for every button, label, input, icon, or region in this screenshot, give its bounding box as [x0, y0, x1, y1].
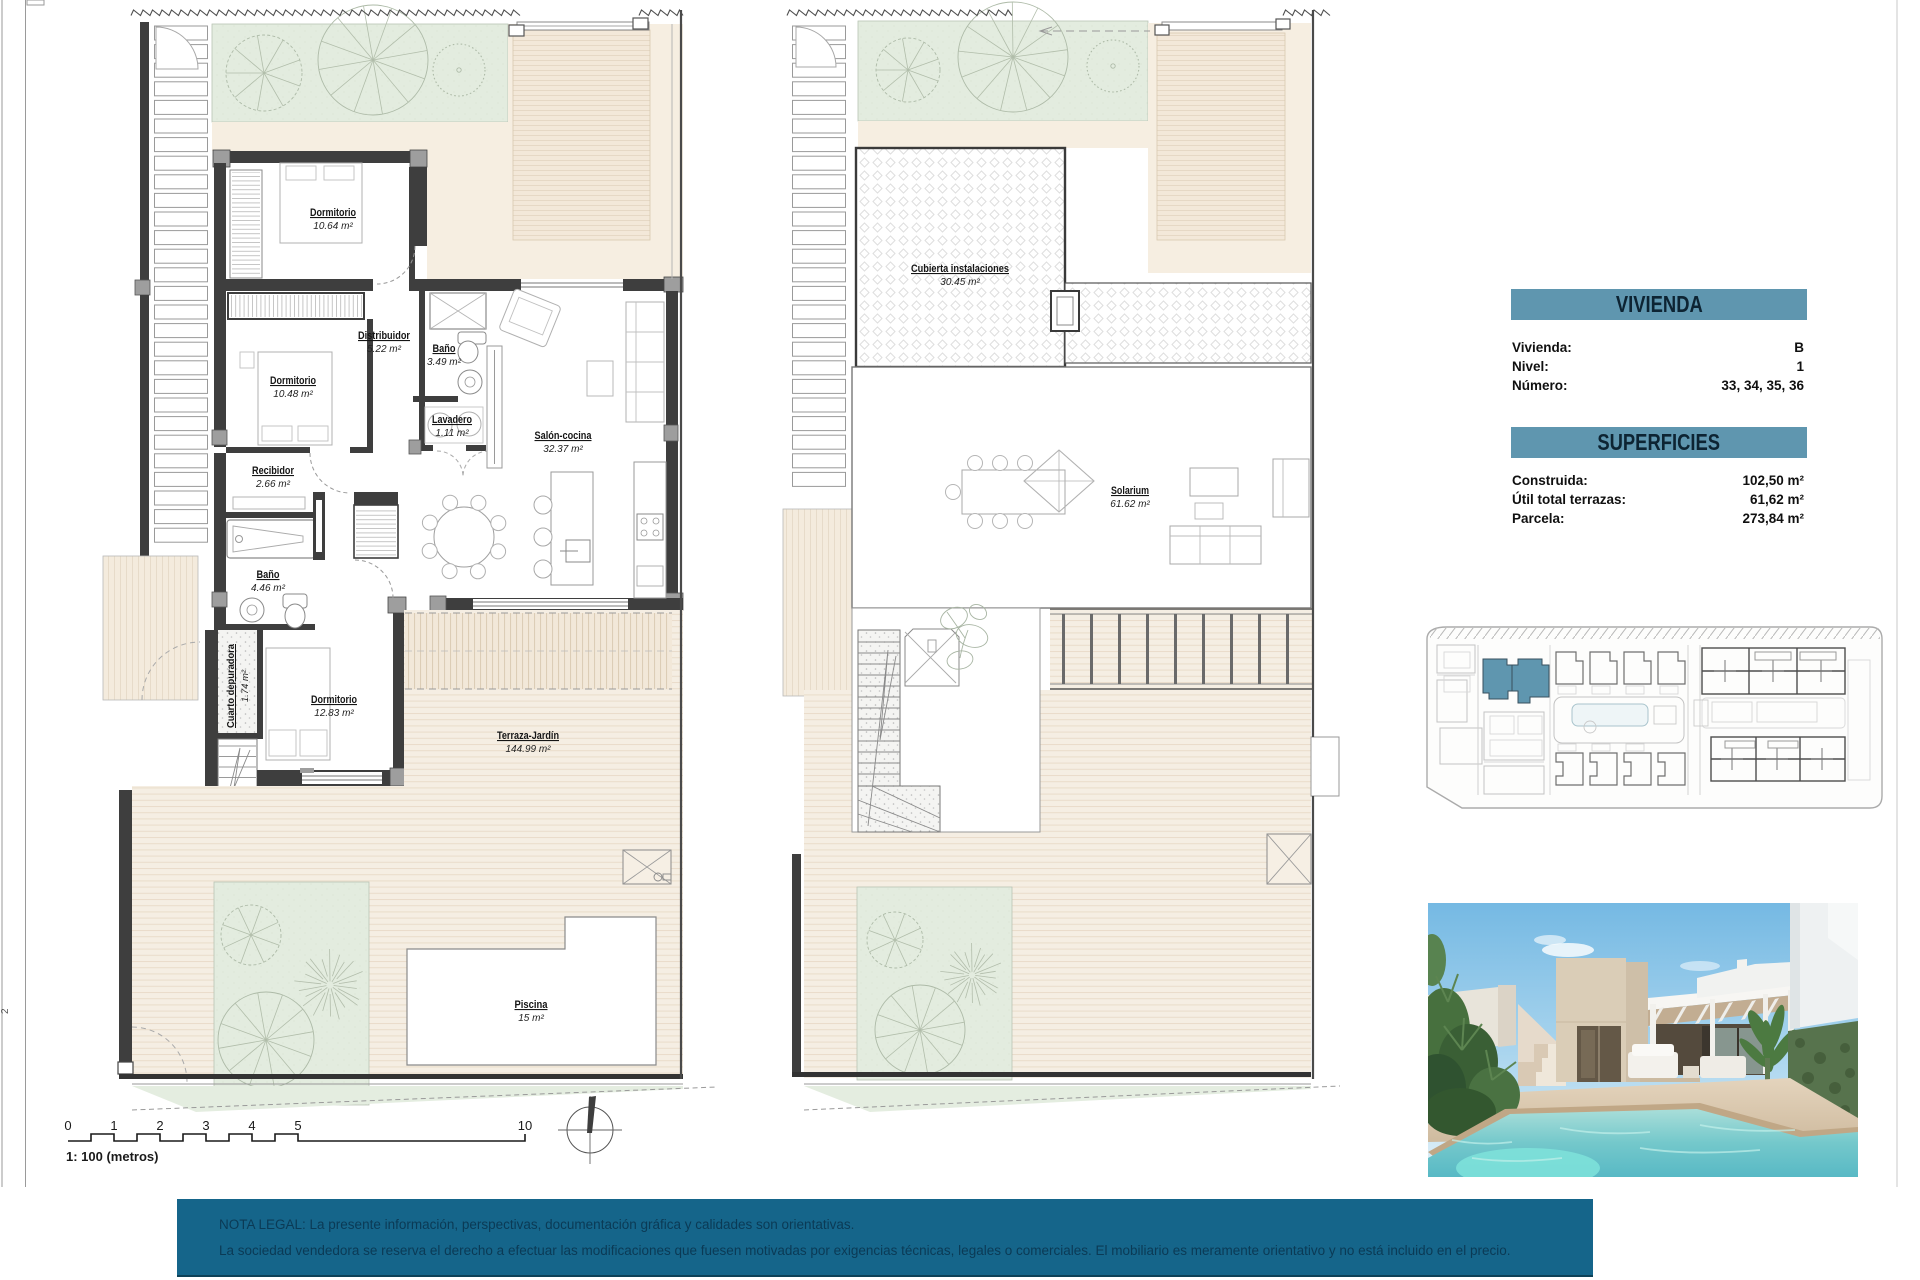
svg-text:Solarium: Solarium: [1111, 485, 1149, 497]
svg-text:Recibidor: Recibidor: [252, 465, 295, 477]
svg-text:1.74 m²: 1.74 m²: [240, 669, 251, 702]
svg-text:Cubierta instalaciones: Cubierta instalaciones: [911, 263, 1009, 275]
svg-text:1.11 m²: 1.11 m²: [435, 428, 469, 439]
svg-text:5: 5: [294, 1118, 301, 1133]
svg-text:12.83 m²: 12.83 m²: [314, 708, 354, 719]
svg-text:10: 10: [518, 1118, 532, 1133]
svg-text:Distribuidor: Distribuidor: [358, 330, 411, 342]
svg-text:4: 4: [248, 1118, 255, 1133]
svg-text:Cuarto depuradora: Cuarto depuradora: [226, 644, 237, 728]
svg-text:Baño: Baño: [433, 343, 456, 355]
svg-text:10.64 m²: 10.64 m²: [313, 221, 353, 232]
svg-text:5.22 m²: 5.22 m²: [367, 344, 402, 355]
svg-text:Dormitorio: Dormitorio: [270, 375, 316, 387]
svg-text:Piscina: Piscina: [515, 999, 549, 1011]
svg-text:32.37 m²: 32.37 m²: [543, 444, 583, 455]
svg-text:15 m²: 15 m²: [518, 1013, 544, 1024]
svg-text:0: 0: [64, 1118, 71, 1133]
svg-text:3: 3: [202, 1118, 209, 1133]
svg-text:Dormitorio: Dormitorio: [311, 694, 357, 706]
svg-text:Lavadero: Lavadero: [432, 414, 472, 426]
svg-text:30.45 m²: 30.45 m²: [940, 277, 980, 288]
svg-text:3.49 m²: 3.49 m²: [427, 357, 462, 368]
svg-text:4.46 m²: 4.46 m²: [251, 583, 286, 594]
svg-text:2: 2: [0, 1008, 11, 1014]
svg-text:1: 100 (metros): 1: 100 (metros): [66, 1149, 158, 1164]
svg-text:1: 1: [110, 1118, 117, 1133]
svg-text:2: 2: [156, 1118, 163, 1133]
svg-text:Salón-cocina: Salón-cocina: [535, 430, 593, 442]
svg-text:Terraza-Jardín: Terraza-Jardín: [497, 730, 559, 742]
svg-text:10.48 m²: 10.48 m²: [273, 389, 313, 400]
svg-text:144.99 m²: 144.99 m²: [505, 744, 551, 755]
svg-text:Baño: Baño: [257, 569, 280, 581]
svg-text:Dormitorio: Dormitorio: [310, 207, 356, 219]
svg-text:61.62 m²: 61.62 m²: [1110, 499, 1150, 510]
svg-text:2.66 m²: 2.66 m²: [255, 479, 291, 490]
